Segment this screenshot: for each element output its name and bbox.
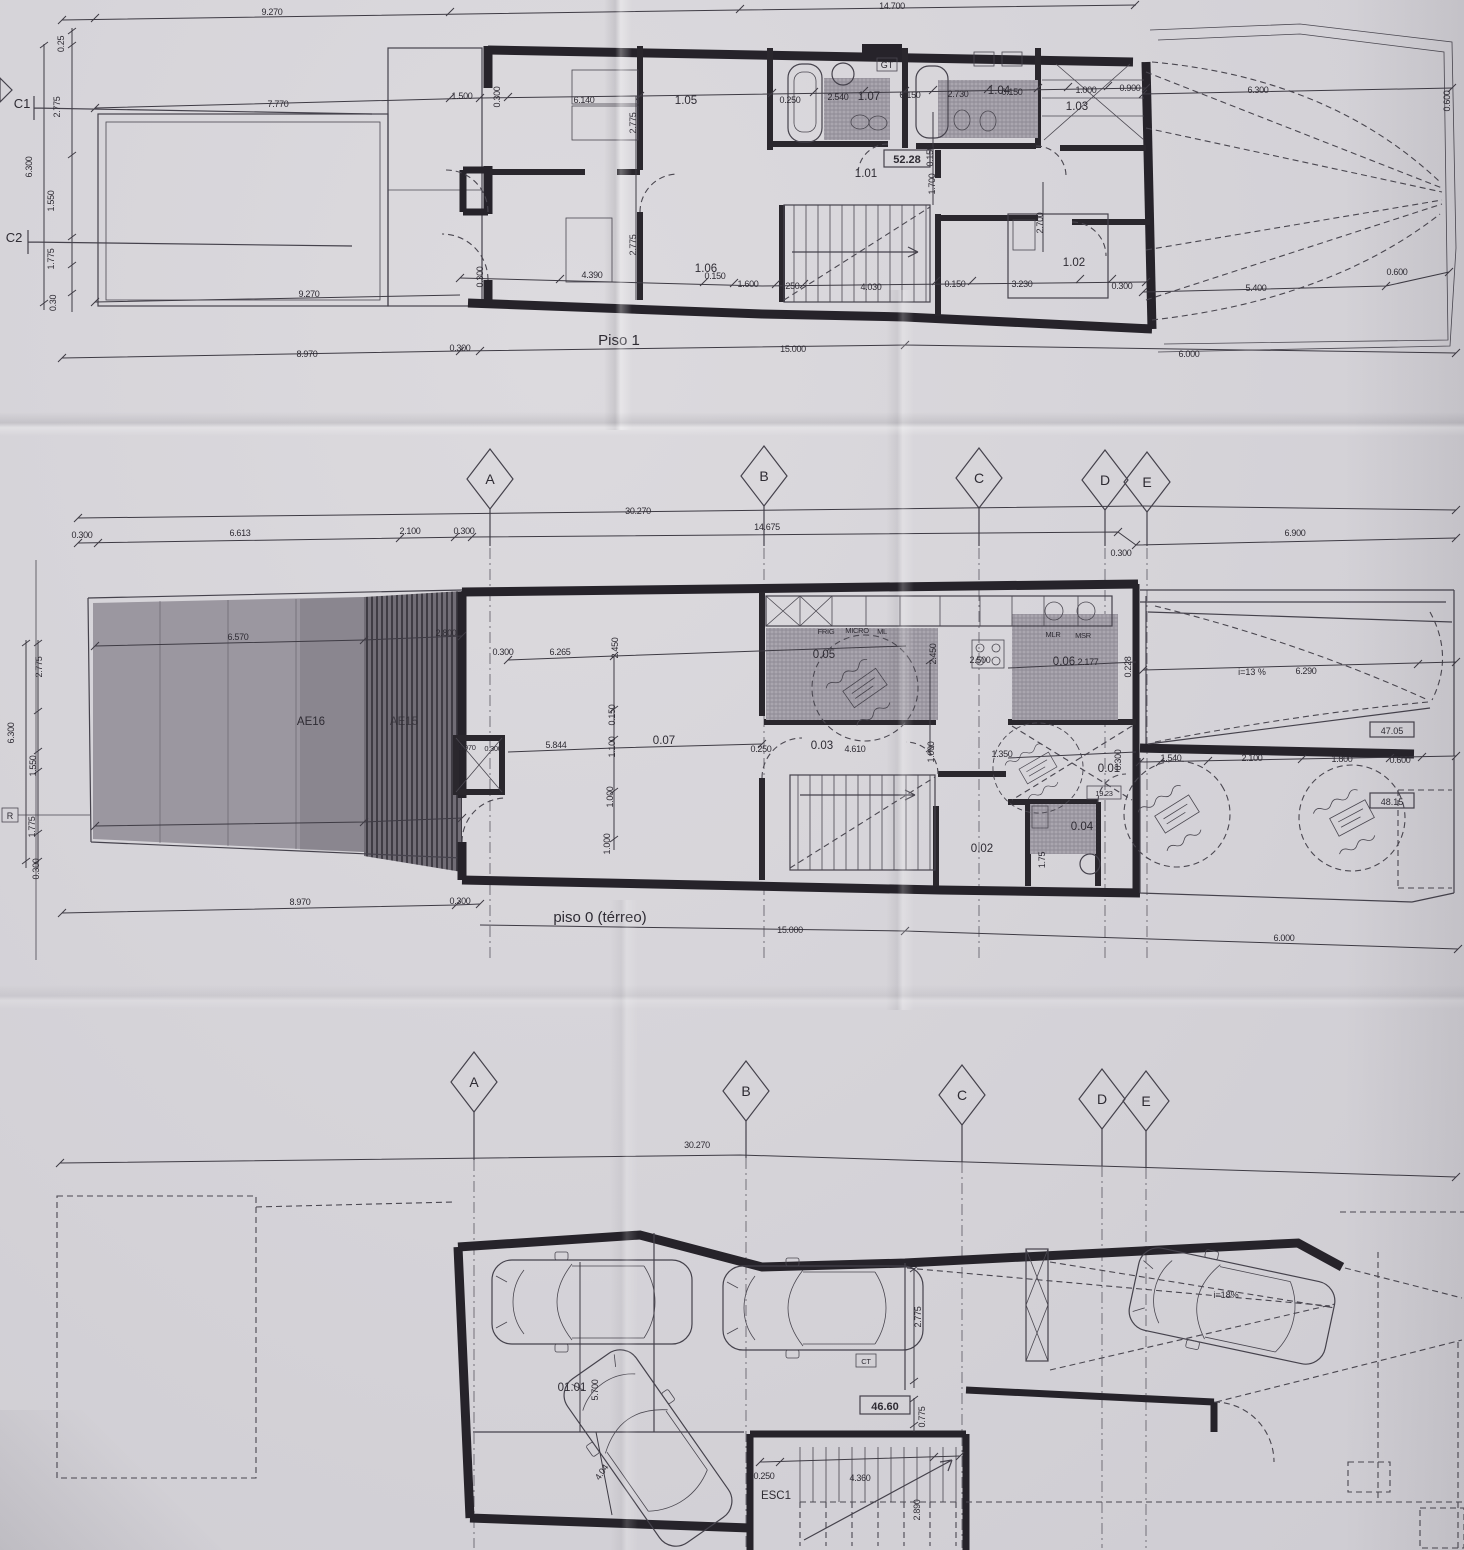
dim-label: 0.30: [48, 295, 58, 312]
grid-letter: B: [759, 468, 768, 484]
marker-label: CT: [861, 1357, 871, 1366]
zone-label: AE15: [390, 716, 418, 728]
dim-label: 1.550: [28, 755, 38, 776]
dim-label: 0.300: [71, 530, 92, 540]
plan-piso1: 9.270 14.700 0.25 2.775 6.300 1.550 1.77…: [0, 1, 1460, 362]
plan-cave: 01.01 5.700 4.04 2.775 0.775 0.250 4.360…: [57, 1158, 1464, 1550]
area-box-label: 52.28: [893, 154, 921, 166]
dim-label: 4.390: [581, 270, 602, 280]
dim-label: 5.700: [590, 1379, 600, 1400]
appliance-label: FRIG: [818, 627, 835, 636]
room-label: 1.07: [858, 91, 880, 103]
stair-piso1: [784, 205, 930, 302]
dim-label: 0.300: [449, 343, 470, 353]
grid-letter: A: [485, 471, 495, 487]
room-label: 01.01: [558, 1382, 587, 1394]
shaft: [862, 44, 902, 60]
section-marker: C1: [14, 96, 31, 111]
plan-piso0: 2.775 6.300 1.550 1.775 0.300 6.570 2.80…: [2, 548, 1462, 960]
dim-label: 0.600: [1442, 90, 1452, 111]
dim-label: 30.270: [625, 506, 651, 516]
deck-hatch: [388, 48, 482, 306]
ramp-slope-label: i=13 %: [1238, 667, 1266, 677]
dim-label: 0.775: [917, 1406, 927, 1427]
dim-label: 14.675: [754, 522, 780, 532]
dim-label: 1.600: [737, 279, 758, 289]
dim-label: 2.775: [628, 112, 638, 133]
grid-letter: E: [1142, 474, 1151, 490]
area-box-label: 19.23: [1095, 789, 1112, 798]
dim-label: 0.300: [475, 266, 485, 287]
marker-label: R: [7, 811, 14, 821]
appliance-label: ML: [877, 627, 887, 636]
room-label: 0.01: [1098, 763, 1120, 775]
dim-label: 0.300: [1111, 281, 1132, 291]
garage-gate: [1026, 1249, 1048, 1361]
dim-label: 2.450: [928, 643, 938, 664]
dim-label: 0.250: [779, 95, 800, 105]
dim-label: 0.970: [458, 743, 475, 752]
grid-letter: A: [469, 1074, 479, 1090]
dim-label: 0.150: [944, 279, 965, 289]
dim-label: 2.100: [1241, 753, 1262, 763]
dim-label: 2.177: [1077, 657, 1098, 667]
dim-label: 15.000: [780, 344, 806, 354]
dim-label: 14.700: [879, 1, 905, 11]
terrace-outline: [98, 114, 388, 306]
dim-label: 6.900: [1284, 528, 1305, 538]
room-label: 1.02: [1063, 257, 1085, 269]
kitchen-floor-hatch: [766, 628, 938, 720]
dim-label: 5.844: [545, 740, 566, 750]
dim-label: 9.270: [261, 7, 282, 17]
dim-label: 0.250: [753, 1471, 774, 1481]
area-box-label: 47.05: [1381, 726, 1404, 736]
room-label: 1.05: [675, 95, 697, 107]
dim-label: 1.000: [602, 833, 612, 854]
dim-label: 5.400: [1245, 283, 1266, 293]
car-icon: [492, 1252, 692, 1352]
dim-label: 6.300: [1247, 85, 1268, 95]
dim-label: 0.150: [607, 704, 617, 725]
dim-label: 0.300: [1110, 548, 1131, 558]
dim-label: 0.150: [899, 90, 920, 100]
grid-letter: D: [1097, 1091, 1107, 1107]
dim-label: 0.300: [31, 858, 41, 879]
appliance-label: MICRO: [845, 626, 869, 635]
plan-title: Piso 1: [598, 332, 640, 349]
dim-label: 1.540: [1160, 753, 1181, 763]
dim-label: 0.300: [492, 86, 502, 107]
grid-marker-partial: [0, 78, 12, 102]
dim-label: 4.030: [860, 282, 881, 292]
car-icon: [723, 1258, 923, 1358]
area-box-label: 48.15: [1381, 797, 1404, 807]
dim-label: 30.270: [684, 1140, 710, 1150]
dim-label: 8.970: [289, 897, 310, 907]
grid-letter: C: [957, 1087, 967, 1103]
dim-label: 0.300: [492, 647, 513, 657]
dim-label: 0.600: [1389, 755, 1410, 765]
dim-label: 2.100: [399, 526, 420, 536]
dim-label: 6.300: [24, 156, 34, 177]
dim-label: 0.300: [453, 526, 474, 536]
dim-label: 1.350: [991, 749, 1012, 759]
ramp-slope-label: i=18%: [1213, 1290, 1238, 1300]
dim-label: 1.000: [605, 786, 615, 807]
dim-label: 6.000: [1273, 933, 1294, 943]
grid-letter: B: [741, 1083, 750, 1099]
scanned-floorplan-sheet: 9.270 14.700 0.25 2.775 6.300 1.550 1.77…: [0, 0, 1464, 1550]
room-label: 0.04: [1071, 821, 1094, 833]
room-label: 0.03: [811, 740, 833, 752]
room-label: 0.05: [813, 649, 835, 661]
dim-label: 2.775: [34, 656, 44, 677]
grid-axes-row2: A B C D E 30.270: [56, 1052, 1460, 1181]
dim-label: 2.775: [52, 96, 62, 117]
dim-label: 1.775: [46, 248, 56, 269]
room-label: 1.06: [695, 263, 717, 275]
dim-label: 1.700: [927, 173, 937, 194]
dim-label: 1.100: [607, 736, 617, 757]
stair-esc1: [800, 1447, 960, 1546]
dim-label: 2.540: [827, 92, 848, 102]
dim-label: 1.000: [1075, 85, 1096, 95]
dim-label: 0.600: [1386, 267, 1407, 277]
dim-label: 2.500: [969, 655, 990, 665]
dim-label: 0.250: [778, 281, 799, 291]
dim-label: 7.770: [267, 99, 288, 109]
zone-label: AE16: [297, 716, 325, 728]
site-boundary-dashed: [57, 1196, 256, 1478]
dim-label: 1.000: [926, 741, 936, 762]
stair-label: ESC1: [761, 1490, 791, 1502]
dim-label: 0.228: [1123, 656, 1133, 677]
dim-label: 2.450: [610, 637, 620, 658]
grid-letter: D: [1100, 472, 1110, 488]
dim-label: 1.775: [27, 816, 37, 837]
dim-label: 4.360: [849, 1473, 870, 1483]
bath-floor-hatch: [824, 78, 890, 140]
dim-label: 0.250: [750, 744, 771, 754]
dim-label: 6.265: [549, 647, 570, 657]
terrace-inner-line: [106, 122, 380, 300]
dim-label: 6.300: [6, 722, 16, 743]
dim-label: 2.730: [947, 89, 968, 99]
dim-label: 2.700: [1035, 212, 1045, 233]
dim-label: 8.970: [296, 349, 317, 359]
dim-label: 9.270: [298, 289, 319, 299]
dim-label: 1.550: [46, 190, 56, 211]
dim-label: 2.775: [913, 1306, 923, 1327]
appliance-label: MSR: [1075, 631, 1092, 640]
dim-label: 6.570: [227, 632, 248, 642]
room-label: 1.01: [855, 168, 877, 180]
dim-label: 3.230: [1011, 279, 1032, 289]
dim-label: 1.500: [451, 91, 472, 101]
grid-axes-row1: A B C D E 30.270 0.300 6.613 2.100 0.300…: [71, 446, 1460, 558]
car-icon: [1124, 1236, 1340, 1375]
room-label: 0.06: [1053, 656, 1075, 668]
dim-label: 2.890: [912, 1499, 922, 1520]
dim-label: 4.610: [844, 744, 865, 754]
room-label: 0.02: [971, 843, 993, 855]
dim-label: 1.75: [1037, 852, 1047, 869]
dim-label: 6.290: [1295, 666, 1316, 676]
dim-label: 0.25: [56, 36, 66, 53]
room-label: 1.04: [988, 85, 1011, 97]
area-box-label: 46.60: [871, 1401, 899, 1413]
dim-label: 6.613: [229, 528, 250, 538]
dim-label: 6.000: [1178, 349, 1199, 359]
plan-title: piso 0 (térreo): [553, 909, 646, 926]
stair-piso0: [790, 775, 935, 870]
appliance-label: MLR: [1046, 630, 1062, 639]
dim-label: 0.300: [484, 744, 501, 753]
room-label: 0.07: [653, 735, 675, 747]
section-marker: C2: [6, 230, 23, 245]
dim-label: 0.300: [449, 896, 470, 906]
grid-letter: E: [1141, 1093, 1150, 1109]
dim-label: 6.140: [573, 95, 594, 105]
dim-label: 15.000: [777, 925, 803, 935]
dim-label: 2.800: [435, 628, 456, 638]
grid-letter: C: [974, 470, 984, 486]
dim-label: 1.800: [1331, 754, 1352, 764]
dim-label: 0.900: [1119, 83, 1140, 93]
dim-label: 2.775: [628, 234, 638, 255]
room-label: 1.03: [1066, 101, 1088, 113]
plan-drawing: 9.270 14.700 0.25 2.775 6.300 1.550 1.77…: [0, 0, 1464, 1550]
shaft-label: GT: [881, 60, 894, 70]
dim-label: 4.04: [593, 1462, 611, 1481]
